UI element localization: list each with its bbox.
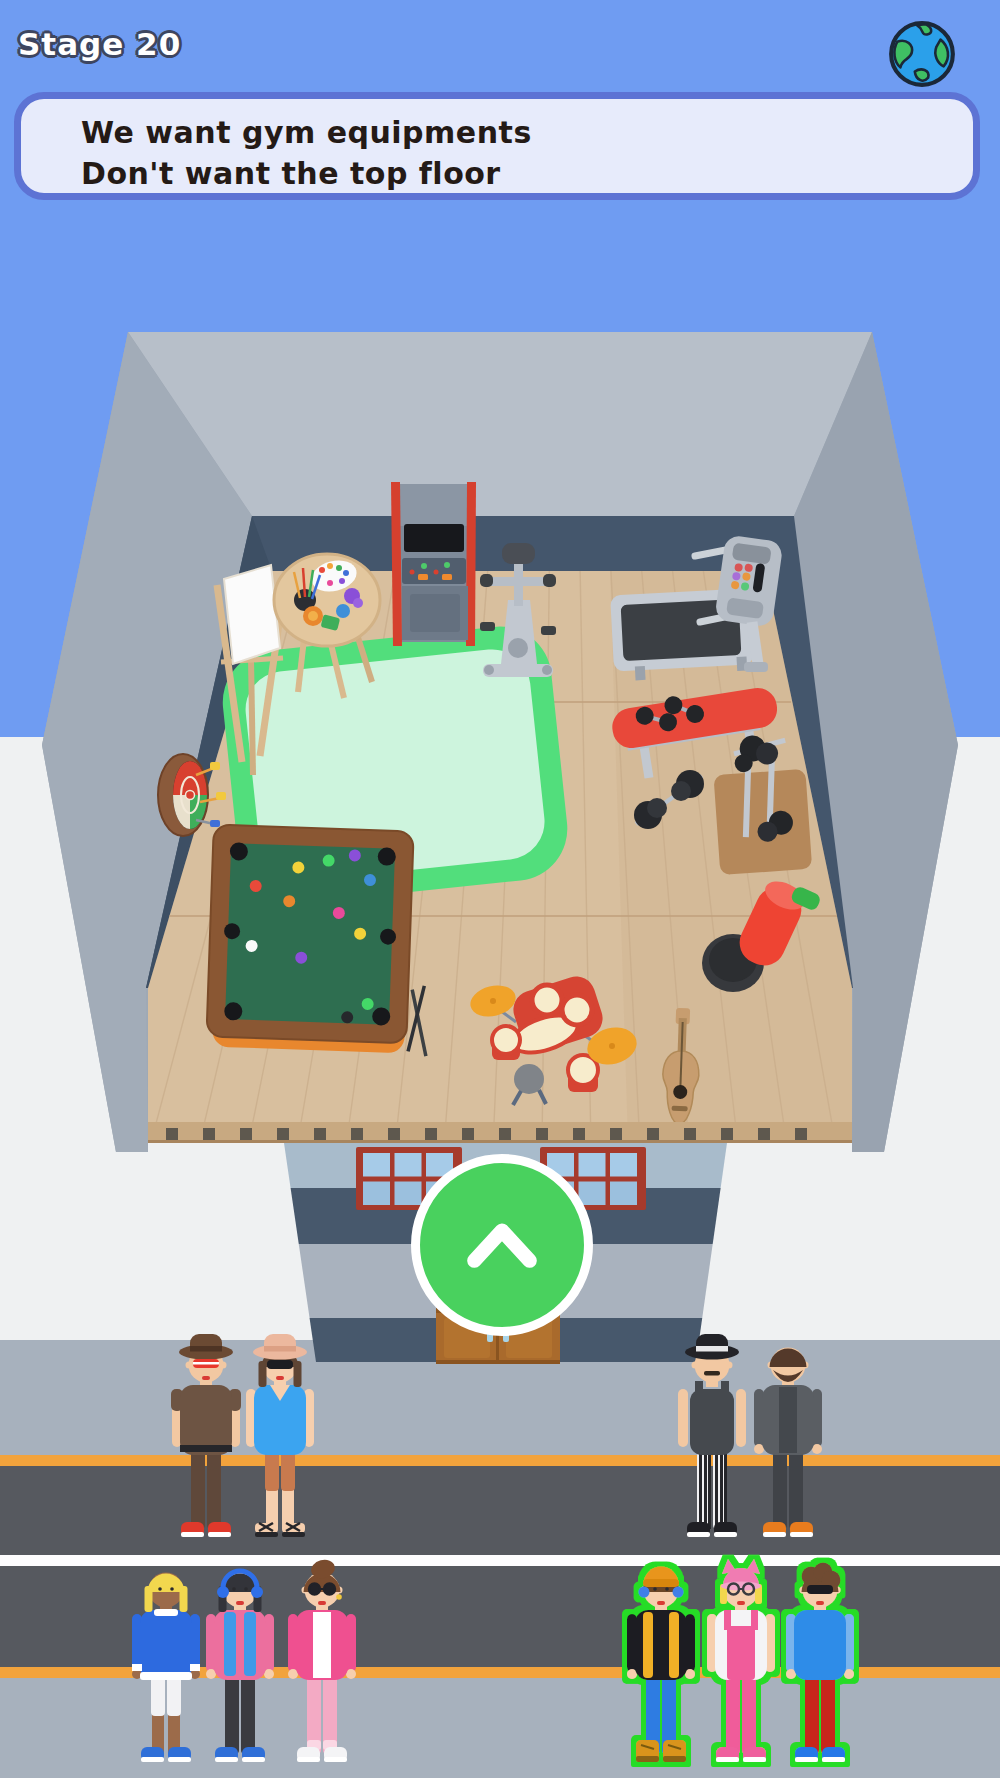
sidewalk-lower [0, 1678, 1000, 1778]
pool-table[interactable] [206, 825, 434, 1057]
request-line-1: We want gym equipments [81, 112, 973, 153]
arcade-machine[interactable] [391, 482, 476, 646]
road-edge-line-top [0, 1455, 1000, 1466]
request-line-2: Don't want the top floor [81, 153, 973, 194]
request-panel: We want gym equipments Don't want the to… [14, 92, 980, 200]
drum-stool [514, 1064, 544, 1094]
stage-label: Stage 20 [18, 26, 181, 62]
arcade-screen [404, 524, 464, 552]
street [0, 1340, 1000, 1778]
send-up-button[interactable] [411, 1154, 593, 1336]
globe-icon[interactable] [886, 18, 958, 90]
road-center-line [0, 1555, 1000, 1566]
blue-cup [336, 604, 350, 618]
wall-top-face [128, 332, 872, 516]
chevron-up-icon [442, 1185, 562, 1305]
floor-slab-edge [148, 1122, 852, 1143]
treadmill-console [714, 534, 783, 627]
bike-seat [502, 543, 535, 564]
canvas [224, 565, 280, 664]
